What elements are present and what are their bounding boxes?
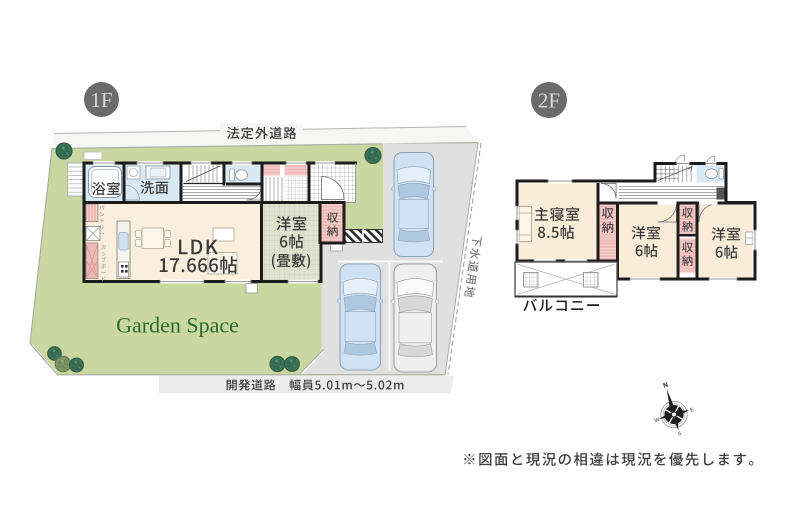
svg-text:Garden Space: Garden Space (116, 313, 239, 338)
svg-text:1F: 1F (90, 88, 112, 112)
svg-text:2F: 2F (538, 89, 560, 113)
